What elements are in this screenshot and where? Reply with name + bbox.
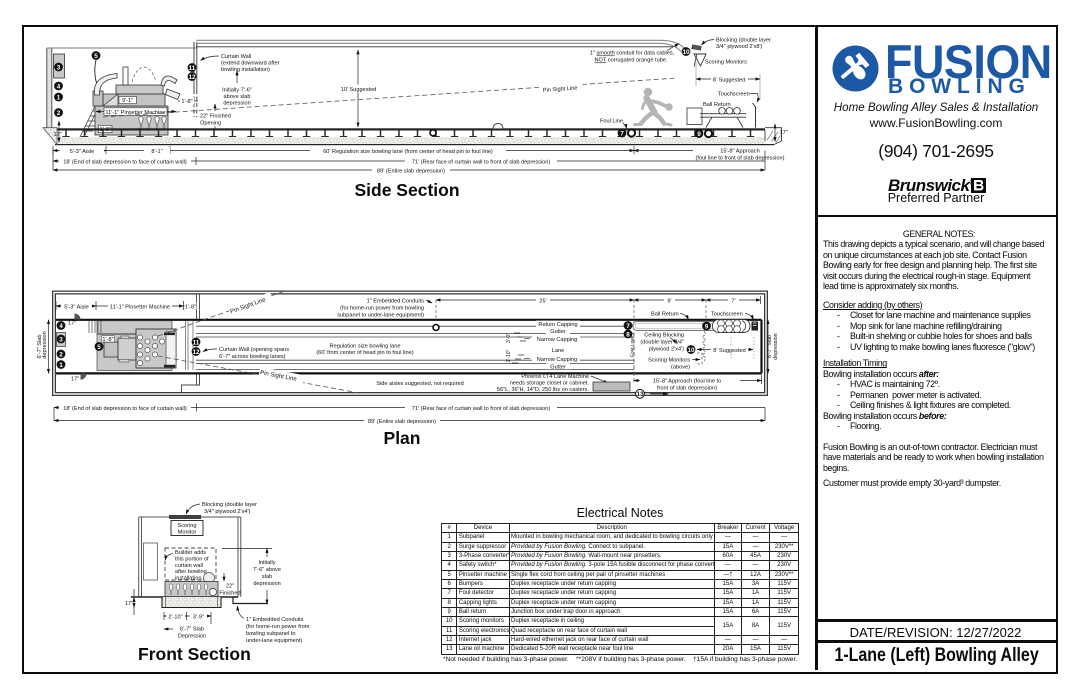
svg-text:(60' from center of head pin t: (60' from center of head pin to foul lin… [316,350,413,356]
svg-text:Narrow Capping: Narrow Capping [537,357,577,363]
svg-text:7': 7' [731,299,735,305]
svg-text:(double layer 3/4": (double layer 3/4" [640,340,684,346]
svg-text:Finished: Finished [219,591,240,597]
svg-text:13: 13 [636,391,644,398]
svg-text:Gutter: Gutter [550,364,566,370]
svg-text:Ball Return: Ball Return [703,102,731,108]
svg-text:8' Suggested: 8' Suggested [713,348,745,354]
svg-text:89' (Entire slab depression): 89' (Entire slab depression) [368,419,436,425]
svg-text:Touchscreen: Touchscreen [718,92,750,98]
svg-text:3: 3 [59,336,63,343]
svg-text:71' (Rear face of curtain wall: 71' (Rear face of curtain wall to front … [412,406,551,412]
svg-text:Regulation size bowling lane: Regulation size bowling lane [330,344,401,350]
svg-text:60' Regulation size bowling la: 60' Regulation size bowling lane (from c… [323,149,493,155]
svg-text:1'-8": 1'-8" [185,305,196,311]
svg-text:Pin Sight Line: Pin Sight Line [543,85,578,93]
svg-text:plywood 2'x4'): plywood 2'x4') [649,347,684,353]
svg-text:4: 4 [59,323,63,330]
svg-text:(extend downward after: (extend downward after [221,61,280,67]
svg-text:depression: depression [42,331,48,358]
svg-text:(above): (above) [671,365,690,371]
svg-text:Narrow Capping: Narrow Capping [537,337,577,343]
svg-text:needs storage closet or cabine: needs storage closet or cabinet. [510,380,590,386]
svg-text:curtain wall: curtain wall [175,563,203,569]
svg-text:3: 3 [57,64,61,71]
svg-text:71' (Rear face of curtain wall: 71' (Rear face of curtain wall to front … [412,160,551,166]
svg-text:(foul line to front of slab de: (foul line to front of slab depression) [696,156,785,162]
svg-text:Blocking (double layer: Blocking (double layer [202,502,257,508]
svg-text:22" Finished: 22" Finished [200,114,231,120]
svg-text:2: 2 [59,351,63,358]
svg-text:after bowling: after bowling [175,569,207,575]
svg-text:5: 5 [97,344,101,351]
svg-text:slab: slab [262,574,272,580]
svg-text:Depression: Depression [178,634,206,640]
svg-text:Monitor: Monitor [178,530,197,536]
svg-text:Initially 7'-6": Initially 7'-6" [222,88,252,94]
svg-text:5'-3" Aisle: 5'-3" Aisle [64,305,89,311]
svg-text:Ceiling Blocking: Ceiling Blocking [644,333,684,339]
svg-text:8' Suggested: 8' Suggested [713,77,745,83]
svg-text:4: 4 [57,83,61,90]
svg-text:10' Suggested: 10' Suggested [341,87,377,93]
svg-text:6'-7" across bowling lanes): 6'-7" across bowling lanes) [219,354,286,360]
svg-text:8: 8 [626,331,630,338]
svg-text:depression: depression [253,581,280,587]
svg-text:17": 17" [125,601,133,607]
svg-text:subpanel to under-lane equipme: subpanel to under-lane equipment) [337,313,424,319]
svg-text:Curtain Wall: Curtain Wall [221,54,251,60]
svg-text:2: 2 [57,110,61,117]
svg-text:56"L, 36"H, 14"D, 250 lbs on c: 56"L, 36"H, 14"D, 250 lbs on casters. [497,387,590,393]
svg-text:under-lane equipment): under-lane equipment) [246,638,302,644]
svg-text:depression: depression [223,101,250,107]
svg-text:installation.: installation. [175,575,203,581]
svg-text:Return Capping: Return Capping [538,322,577,328]
svg-text:3/4" plywood 2'x4'): 3/4" plywood 2'x4') [204,509,251,515]
svg-text:12: 12 [192,349,200,356]
svg-text:2'-10": 2'-10" [168,615,182,621]
svg-text:this portion of: this portion of [175,557,209,563]
svg-text:Scoring: Scoring [178,523,197,529]
svg-text:2'-10": 2'-10" [506,349,512,362]
svg-text:17": 17" [54,132,62,138]
svg-text:Lane: Lane [552,348,564,354]
svg-text:1: 1 [57,94,61,101]
svg-text:5'-3" Aisle: 5'-3" Aisle [70,149,95,155]
svg-text:3/4" plywood 2'x8'): 3/4" plywood 2'x8') [716,44,763,50]
svg-text:11'-1" Pinsetter Machine: 11'-1" Pinsetter Machine [110,305,170,311]
svg-text:(for home-run power from bowli: (for home-run power from bowling [340,306,424,312]
svg-text:1'-8": 1'-8" [102,337,113,343]
svg-text:18' (End of slab depression to: 18' (End of slab depression to face of c… [63,160,187,166]
svg-text:NOT corrugated orange tube.: NOT corrugated orange tube. [595,58,668,64]
svg-text:22": 22" [226,584,234,590]
svg-text:Initially: Initially [258,560,275,566]
svg-text:Ball Return: Ball Return [651,312,679,318]
svg-text:7'-6" above: 7'-6" above [253,567,281,573]
svg-text:1" Embedded Conduits: 1" Embedded Conduits [367,299,425,305]
svg-text:Phoenix LT4 Lane Machine: Phoenix LT4 Lane Machine [521,374,589,380]
svg-text:9: 9 [705,323,709,330]
svg-text:Curtain Wall (opening spans: Curtain Wall (opening spans [219,347,289,353]
svg-text:Gutter: Gutter [550,329,566,335]
svg-text:depression: depression [773,333,779,359]
svg-text:7: 7 [620,130,624,137]
svg-text:3'-9": 3'-9" [193,615,204,621]
svg-text:11: 11 [189,65,196,72]
svg-text:11: 11 [193,339,200,346]
svg-text:Side aisles suggested, not req: Side aisles suggested, not required [376,381,463,387]
svg-text:1" Embedded Conduits: 1" Embedded Conduits [246,617,304,623]
svg-text:1: 1 [59,362,63,369]
svg-text:17": 17" [71,377,79,383]
svg-text:17": 17" [780,130,788,136]
svg-text:89' (Entire slab depression): 89' (Entire slab depression) [377,169,445,175]
svg-text:(for home-run power from: (for home-run power from [246,624,310,630]
svg-text:Opening: Opening [200,121,221,127]
svg-text:Scoring Monitors: Scoring Monitors [648,358,690,364]
svg-text:1" smooth conduit for data cab: 1" smooth conduit for data cables, [590,51,675,57]
svg-text:front of slab depression): front of slab depression) [657,386,717,392]
svg-text:15'-8" Approach: 15'-8" Approach [720,149,759,155]
svg-text:3'-0": 3'-0" [506,333,512,343]
svg-text:1'-8": 1'-8" [181,99,192,105]
svg-text:Front Section: Front Section [138,644,251,664]
svg-text:Plan: Plan [384,428,421,448]
svg-text:18' (End of slab depression to: 18' (End of slab depression to face of c… [63,406,187,412]
svg-text:Foul Line: Foul Line [630,337,636,357]
svg-text:bowling subpanel to: bowling subpanel to [246,631,295,637]
svg-text:25': 25' [539,299,546,305]
svg-text:9: 9 [697,131,701,138]
svg-text:Foul Line: Foul Line [600,119,623,125]
svg-text:6'-7" Slab: 6'-7" Slab [180,627,204,633]
svg-text:Builder adds: Builder adds [175,550,206,556]
svg-text:12: 12 [188,74,196,81]
svg-text:15'-8" Approach (foul line to: 15'-8" Approach (foul line to [653,379,721,385]
svg-text:Touchscreen: Touchscreen [711,312,743,318]
svg-text:5: 5 [94,53,98,60]
svg-text:bowling installation): bowling installation) [221,67,270,73]
svg-text:above slab: above slab [223,94,250,100]
svg-text:Side Section: Side Section [354,180,459,200]
svg-text:17": 17" [68,321,76,327]
svg-text:10: 10 [687,347,695,354]
svg-text:7: 7 [626,323,630,330]
svg-text:10: 10 [682,49,690,56]
svg-text:Blocking (double layer: Blocking (double layer [716,38,771,44]
svg-text:8'-1": 8'-1" [151,149,162,155]
svg-text:9': 9' [667,299,671,305]
svg-text:Scoring Monitors: Scoring Monitors [705,60,747,66]
svg-text:9'-1": 9'-1" [122,98,133,104]
